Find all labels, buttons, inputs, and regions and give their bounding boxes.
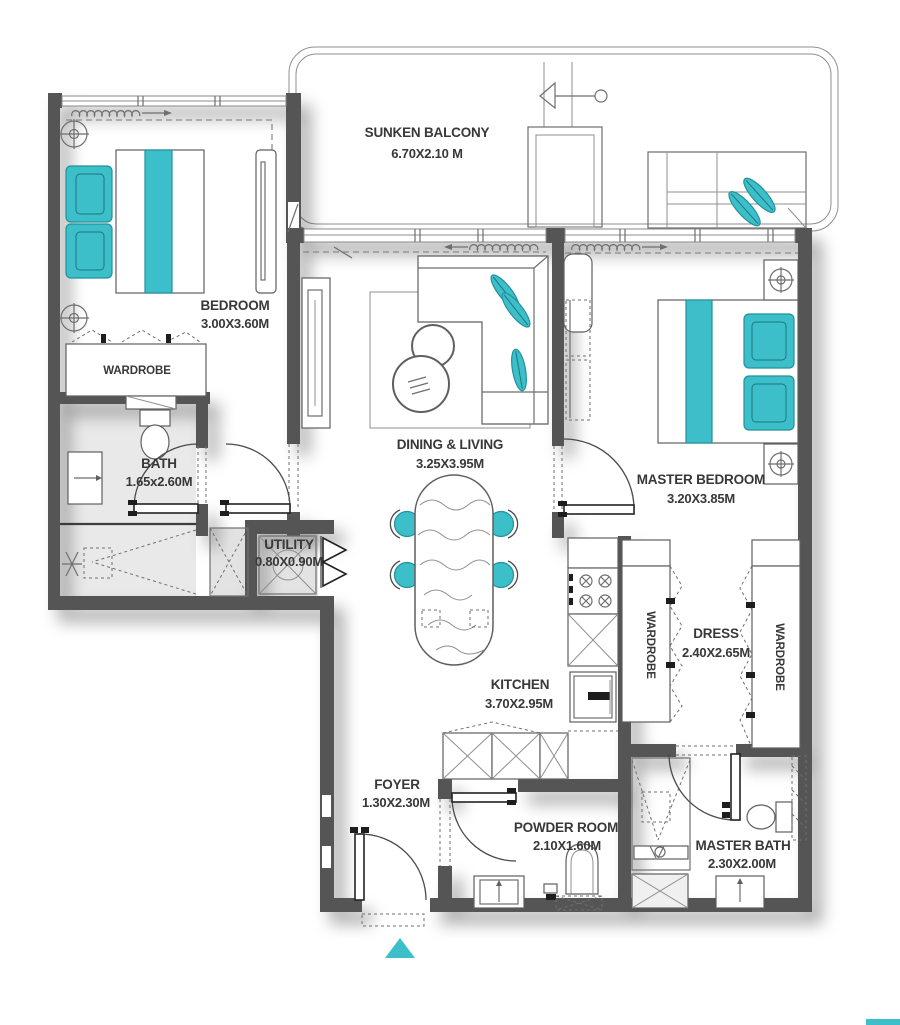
dims-dress: 2.40X2.65M [682,645,750,660]
sink-icon [716,876,764,908]
dims-bath: 1.65x2.60M [126,474,193,489]
plant-leaves-icon [725,174,780,229]
powder-room-door [440,788,516,866]
master-bedroom-furniture [564,254,798,484]
nightstand [764,260,798,300]
entrance-arrow-icon [385,938,415,958]
living-furniture [302,256,548,428]
master-bedroom-door [554,439,634,517]
label-master-bedroom: MASTER BEDROOM [637,472,765,487]
dims-bedroom: 3.00X3.60M [201,316,269,331]
label-bedroom-wardrobe: WARDROBE [103,365,171,377]
fridge-icon [570,672,616,722]
bedroom-wardrobe [66,330,206,396]
dims-foyer: 1.30X2.30M [362,795,430,810]
tv-unit [564,254,592,420]
label-sunken-balcony: SUNKEN BALCONY [365,125,490,140]
stove-icon [568,568,618,614]
nightstand [764,444,798,484]
dims-utility: 0.80X0.90M [255,554,323,569]
kitchen-counter [443,722,568,779]
bedroom-door [220,444,298,516]
bifold-door-icon [321,536,346,588]
label-kitchen: KITCHEN [491,677,550,692]
curtain-coil-icon [444,244,538,250]
label-foyer: FOYER [374,777,420,792]
coffee-tables [393,325,454,412]
label-dress-wardrobe-left: WARDROBE [644,611,656,679]
sink-icon [68,452,102,504]
media-unit [302,278,330,428]
curtain-coil-icon [72,110,172,116]
label-dress: DRESS [693,626,739,641]
balcony-door-swing-icon [540,83,607,108]
sink-icon [474,876,524,908]
label-dress-wardrobe-right: WARDROBE [773,623,785,691]
dims-master-bedroom: 3.20X3.85M [667,491,735,506]
floor-plan-page: SUNKEN BALCONY 6.70X2.10 M BEDROOM 3.00X… [0,0,900,1025]
master-bath-fixtures [632,756,806,908]
toilet-icon [140,410,170,459]
toilet-icon [747,802,792,832]
dims-kitchen: 3.70X2.95M [485,696,553,711]
floor-plan-drawing: SUNKEN BALCONY 6.70X2.10 M BEDROOM 3.00X… [0,0,900,1025]
balcony-bench [648,152,806,228]
tv-panel [256,150,276,293]
label-dining-living: DINING & LIVING [397,437,504,452]
label-bedroom: BEDROOM [200,298,269,313]
dims-powder-room: 2.10X1.60M [533,838,601,853]
ceiling-lamp-icon [59,119,89,149]
shower-icon [632,758,690,870]
dims-master-bath: 2.30X2.00M [708,856,776,871]
dims-sunken-balcony: 6.70X2.10 M [391,146,463,161]
curtain-coil-icon [572,244,668,250]
label-bath: BATH [141,456,177,471]
bedroom-furniture [59,119,276,396]
page-corner-accent [866,1019,900,1025]
label-master-bath: MASTER BATH [695,838,790,853]
dining-table [390,475,517,665]
ceiling-lamp-icon [59,303,89,333]
master-bath-door [669,754,740,820]
bed [658,300,798,443]
label-utility: UTILITY [264,537,314,552]
dims-dining-living: 3.25X3.95M [416,456,484,471]
bed [66,150,204,293]
label-powder-room: POWDER ROOM [514,820,618,835]
